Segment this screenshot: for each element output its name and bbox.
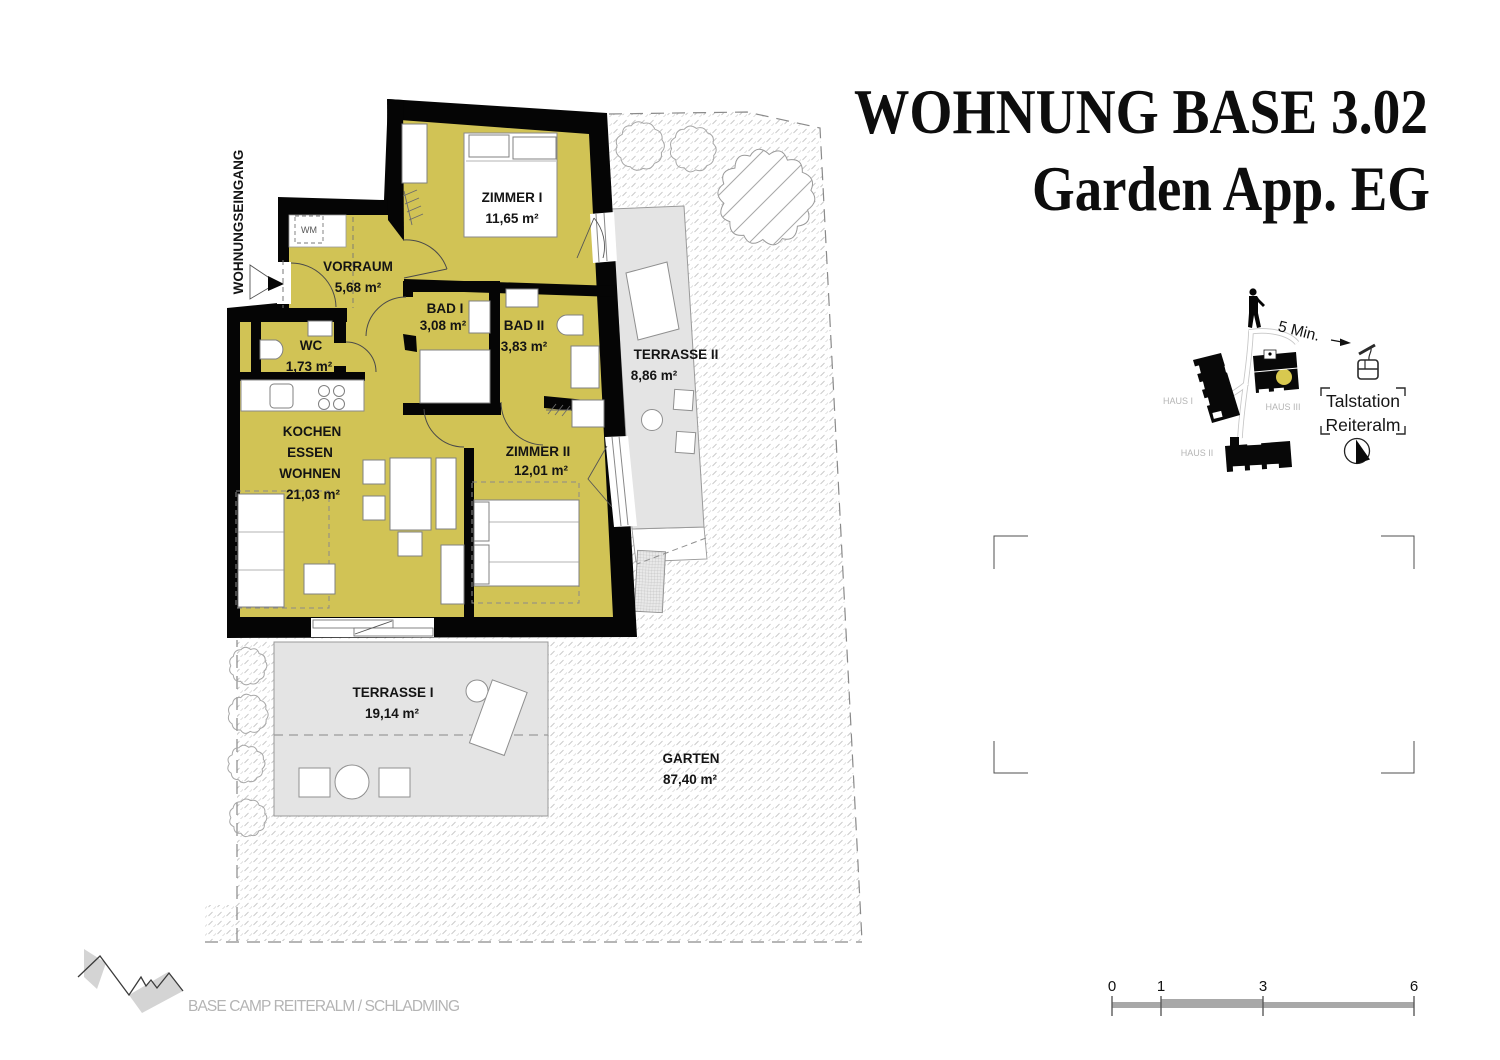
svg-text:Reiteralm: Reiteralm — [1326, 415, 1401, 435]
svg-text:BAD I: BAD I — [427, 301, 464, 316]
svg-text:19,14 m²: 19,14 m² — [365, 706, 420, 721]
svg-text:TERRASSE II: TERRASSE II — [634, 347, 719, 362]
svg-text:Talstation: Talstation — [1326, 391, 1400, 411]
svg-text:KOCHEN: KOCHEN — [283, 424, 342, 439]
svg-text:1: 1 — [1157, 978, 1165, 995]
svg-text:21,03 m²: 21,03 m² — [286, 487, 341, 502]
svg-text:HAUS I: HAUS I — [1163, 396, 1193, 406]
svg-text:WOHNUNG BASE 3.02: WOHNUNG BASE 3.02 — [854, 77, 1428, 147]
svg-text:1,73 m²: 1,73 m² — [286, 359, 333, 374]
svg-text:3,08 m²: 3,08 m² — [420, 318, 467, 333]
svg-text:GARTEN: GARTEN — [663, 751, 720, 766]
svg-text:ZIMMER I: ZIMMER I — [482, 190, 543, 205]
svg-text:ZIMMER II: ZIMMER II — [506, 444, 571, 459]
svg-text:6: 6 — [1410, 978, 1418, 995]
svg-text:HAUS III: HAUS III — [1265, 402, 1300, 412]
svg-text:3: 3 — [1259, 978, 1267, 995]
svg-text:3,83 m²: 3,83 m² — [501, 339, 548, 354]
svg-text:8,86 m²: 8,86 m² — [631, 368, 678, 383]
svg-text:WOHNUNGSEINGANG: WOHNUNGSEINGANG — [231, 150, 246, 295]
svg-text:12,01 m²: 12,01 m² — [514, 463, 569, 478]
svg-text:WOHNEN: WOHNEN — [279, 466, 341, 481]
svg-text:ESSEN: ESSEN — [287, 445, 333, 460]
svg-text:WC: WC — [300, 338, 323, 353]
svg-text:Garden App. EG: Garden App. EG — [1032, 154, 1430, 224]
svg-text:VORRAUM: VORRAUM — [323, 259, 393, 274]
svg-text:11,65 m²: 11,65 m² — [485, 211, 539, 226]
svg-text:BAD II: BAD II — [504, 318, 545, 333]
svg-text:87,40 m²: 87,40 m² — [663, 772, 718, 787]
svg-text:5,68 m²: 5,68 m² — [335, 280, 382, 295]
svg-text:WM: WM — [301, 225, 317, 235]
svg-text:HAUS II: HAUS II — [1181, 448, 1214, 458]
svg-text:TERRASSE I: TERRASSE I — [352, 685, 433, 700]
svg-text:BASE CAMP REITERALM / SCHLADMI: BASE CAMP REITERALM / SCHLADMING — [188, 998, 460, 1015]
svg-text:0: 0 — [1108, 978, 1116, 995]
